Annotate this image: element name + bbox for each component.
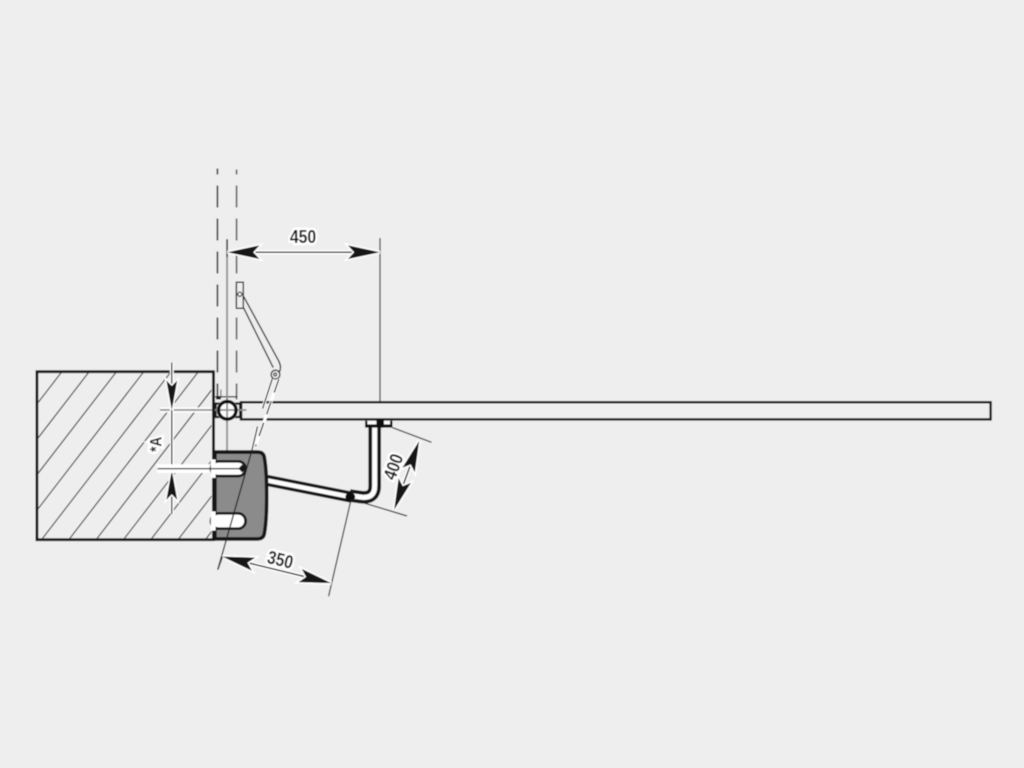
svg-text:*A: *A	[148, 437, 166, 452]
svg-text:450: 450	[290, 226, 316, 248]
